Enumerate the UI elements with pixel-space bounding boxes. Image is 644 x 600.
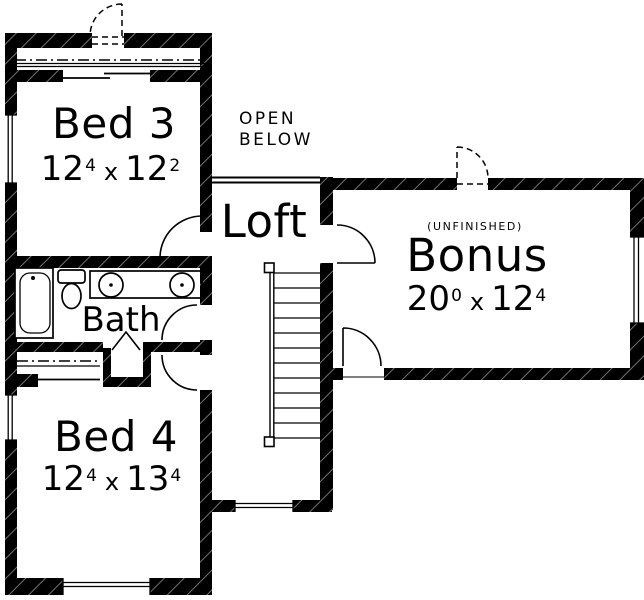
- bed3-top-door-swing: [90, 4, 124, 44]
- dim-height: 12: [125, 149, 168, 189]
- bed4-dimensions: 124x134: [42, 462, 182, 496]
- dim-height-sup: 4: [170, 466, 181, 486]
- bed3-closet-shelf: [15, 64, 205, 67]
- stair-treads: [274, 273, 320, 438]
- dim-width-sup: 4: [85, 156, 96, 176]
- sink-drain-right: [180, 283, 184, 287]
- open-below-line1: OPEN: [239, 109, 313, 130]
- staircase: [265, 263, 321, 447]
- floor-plan: Bed 3 124x122 OPEN BELOW Loft (UNFINISHE…: [0, 0, 644, 600]
- dim-separator: x: [470, 288, 484, 316]
- bath-label: Bath: [81, 303, 160, 337]
- bonus-dimensions: 200x124: [407, 282, 547, 316]
- dim-height-sup: 4: [535, 286, 546, 306]
- bath-door-swing: [162, 305, 197, 340]
- open-below-label: OPEN BELOW: [239, 109, 313, 151]
- bed4-label: Bed 4: [54, 416, 178, 458]
- bed3-door-swing: [160, 216, 202, 258]
- bathtub: [15, 268, 53, 338]
- dim-width: 20: [407, 279, 450, 319]
- dim-height-sup: 2: [169, 156, 180, 176]
- bonus-top-door-swing: [457, 147, 488, 184]
- bonus-entry-door-swing: [343, 328, 381, 366]
- dim-height: 13: [126, 459, 169, 499]
- loft-bonus-door-swing: [337, 225, 375, 263]
- dim-width: 12: [42, 459, 85, 499]
- hall-south-window: [235, 500, 293, 512]
- loft-label: Loft: [221, 199, 308, 244]
- dim-width-sup: 4: [86, 466, 97, 486]
- bed3-left-window: [5, 115, 17, 183]
- sink-drain-left: [109, 283, 113, 287]
- open-below-line2: BELOW: [239, 130, 313, 151]
- stair-railing: [270, 272, 274, 438]
- dim-separator: x: [105, 468, 119, 496]
- bonus-label: Bonus: [406, 233, 547, 278]
- bonus-right-window: [630, 237, 644, 323]
- bed4-door-swing: [162, 355, 197, 390]
- bed3-label: Bed 3: [52, 103, 176, 145]
- newel-post-top: [265, 263, 275, 273]
- vanity-sinks: [90, 271, 202, 298]
- newel-post-bottom: [265, 437, 275, 447]
- bed3-closet-bypass-doors: [63, 74, 150, 79]
- dim-separator: x: [104, 158, 118, 186]
- bed4-left-window: [5, 395, 17, 440]
- dim-width-sup: 0: [451, 286, 462, 306]
- loft-railing: [212, 178, 320, 183]
- dim-width: 12: [41, 149, 84, 189]
- dim-height: 12: [491, 279, 534, 319]
- bed3-dimensions: 124x122: [41, 152, 181, 186]
- tub-drain: [31, 276, 35, 280]
- bed4-bottom-window: [63, 578, 150, 595]
